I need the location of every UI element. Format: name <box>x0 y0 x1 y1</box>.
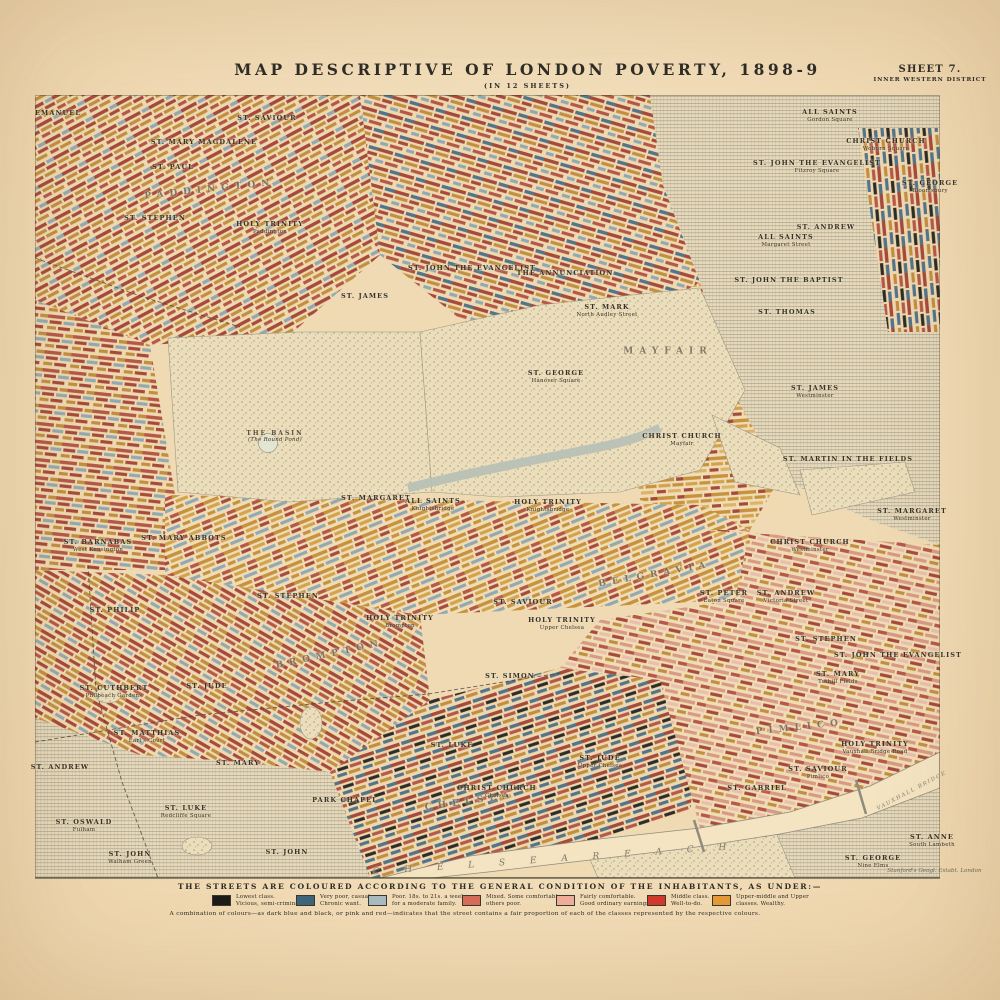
page-subtitle: (IN 12 SHEETS) <box>55 82 1000 90</box>
legend-item: Middle class.Well-to-do. <box>647 894 710 909</box>
legend-item: Upper-middle and Upperclasses. Wealthy. <box>712 894 809 909</box>
legend-item: Very poor, casual.Chronic want. <box>296 894 372 909</box>
legend-heading: THE STREETS ARE COLOURED ACCORDING TO TH… <box>0 882 1000 891</box>
legend-item: Poor. 18s. to 21s. a weekfor a moderate … <box>368 894 465 909</box>
page-title: MAP DESCRIPTIVE OF LONDON POVERTY, 1898-… <box>55 60 1000 79</box>
sheet-number: SHEET 7. <box>868 64 992 75</box>
legend-swatch <box>712 895 731 906</box>
legend-item: Mixed. Some comfortable,others poor. <box>462 894 563 909</box>
legend: THE STREETS ARE COLOURED ACCORDING TO TH… <box>0 878 1000 928</box>
legend-label: Very poor, casual.Chronic want. <box>320 894 372 909</box>
legend-label: Lowest class.Vicious, semi-criminal. <box>236 894 303 909</box>
legend-label: Fairly comfortable.Good ordinary earning… <box>580 894 651 909</box>
legend-label: Poor. 18s. to 21s. a weekfor a moderate … <box>392 894 465 909</box>
engraver-credit: Stanford's Geogl. Estabt. London <box>872 868 997 874</box>
round-pond <box>259 434 278 453</box>
legend-swatch <box>462 895 481 906</box>
legend-note: A combination of colours—as dark blue an… <box>0 911 930 917</box>
legend-label: Middle class.Well-to-do. <box>671 894 710 909</box>
map-sheet: EMANUELST. SAVIOURST. MARY MAGDALENEST. … <box>0 0 1000 1000</box>
header: MAP DESCRIPTIVE OF LONDON POVERTY, 1898-… <box>55 60 1000 90</box>
legend-item: Fairly comfortable.Good ordinary earning… <box>556 894 651 909</box>
legend-swatch <box>296 895 315 906</box>
legend-swatch <box>556 895 575 906</box>
legend-swatch <box>368 895 387 906</box>
legend-swatch <box>212 895 231 906</box>
legend-label: Mixed. Some comfortable,others poor. <box>486 894 563 909</box>
legend-item: Lowest class.Vicious, semi-criminal. <box>212 894 303 909</box>
map-engraving <box>0 0 1000 1000</box>
legend-label: Upper-middle and Upperclasses. Wealthy. <box>736 894 809 909</box>
sheet-info: SHEET 7. INNER WESTERN DISTRICT <box>868 64 992 83</box>
legend-swatch <box>647 895 666 906</box>
sheet-district: INNER WESTERN DISTRICT <box>868 77 992 83</box>
